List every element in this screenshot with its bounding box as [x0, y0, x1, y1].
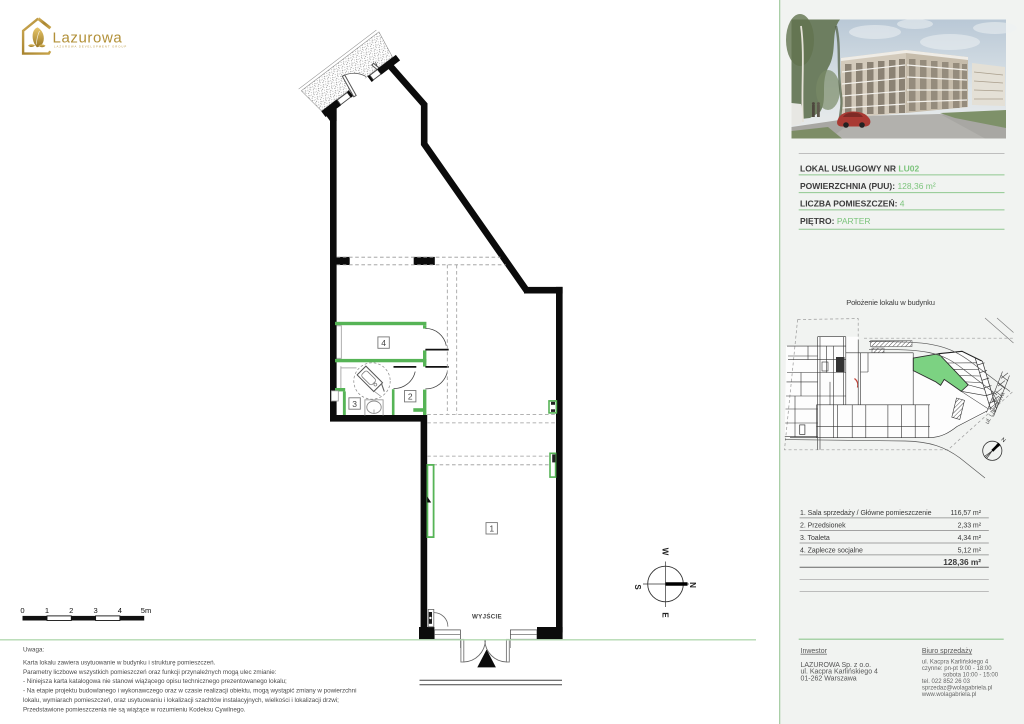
svg-text:- Na etapie projektu budowlane: - Na etapie projektu budowlanego i wykon… — [23, 688, 356, 695]
svg-text:01-262 Warszawa: 01-262 Warszawa — [801, 676, 857, 683]
svg-text:WYJŚCIE: WYJŚCIE — [472, 613, 502, 620]
svg-text:N: N — [688, 582, 697, 588]
svg-text:1: 1 — [45, 606, 49, 615]
svg-text:lokalu, wymiarach pomieszczeń,: lokalu, wymiarach pomieszczeń, oraz usyt… — [23, 697, 339, 704]
svg-text:116,57 m²: 116,57 m² — [950, 510, 981, 517]
svg-text:4: 4 — [381, 338, 386, 348]
svg-text:Biuro sprzedaży: Biuro sprzedaży — [922, 648, 973, 655]
svg-text:2. Przedsionek: 2. Przedsionek — [800, 522, 846, 529]
svg-text:5m: 5m — [141, 606, 152, 615]
svg-text:3. Toaleta: 3. Toaleta — [800, 535, 830, 542]
svg-text:sprzedaz@wolagabriela.pl: sprzedaz@wolagabriela.pl — [922, 685, 992, 691]
svg-text:Parametry liczbowe wszystkich: Parametry liczbowe wszystkich pomieszcze… — [23, 669, 277, 676]
svg-text:PIĘTRO: PARTER: PIĘTRO: PARTER — [800, 216, 871, 226]
svg-text:www.wolagabriela.pl: www.wolagabriela.pl — [921, 692, 976, 698]
svg-text:Inwestor: Inwestor — [801, 648, 828, 655]
svg-text:W: W — [661, 548, 670, 556]
svg-text:Karta lokalu zawiera usytuowan: Karta lokalu zawiera usytuowanie w budyn… — [23, 659, 216, 666]
svg-text:3: 3 — [352, 399, 357, 409]
svg-text:0: 0 — [20, 606, 24, 615]
svg-text:2,33 m²: 2,33 m² — [958, 522, 982, 529]
svg-text:Uwaga:: Uwaga: — [23, 647, 44, 654]
svg-text:sobota 10:00 - 15:00: sobota 10:00 - 15:00 — [943, 673, 999, 679]
svg-text:LICZBA POMIESZCZEŃ: 4: LICZBA POMIESZCZEŃ: 4 — [800, 199, 905, 209]
svg-text:- Niniejsza karta katalogowa n: - Niniejsza karta katalogowa nie stanowi… — [23, 678, 287, 685]
svg-text:E: E — [661, 612, 670, 618]
svg-text:4. Zaplecze socjalne: 4. Zaplecze socjalne — [800, 547, 863, 554]
svg-text:czynne: pn-pt 9:00 - 18:: czynne: pn-pt 9:00 - 18:00 — [922, 666, 992, 672]
svg-text:POWIERZCHNIA (PUU): 128,36 m²: POWIERZCHNIA (PUU): 128,36 m² — [800, 181, 936, 191]
svg-text:LAZUROWA DEVELOPMENT GROUP: LAZUROWA DEVELOPMENT GROUP — [54, 45, 127, 49]
svg-text:4,34 m²: 4,34 m² — [958, 535, 982, 542]
svg-text:ul. Kacpra Karlińskiego 4: ul. Kacpra Karlińskiego 4 — [922, 660, 989, 666]
svg-text:2: 2 — [408, 392, 413, 402]
svg-text:3: 3 — [93, 606, 97, 615]
svg-text:2: 2 — [69, 606, 73, 615]
svg-text:128,36 m²: 128,36 m² — [943, 557, 981, 567]
svg-text:S: S — [633, 584, 642, 590]
svg-text:4: 4 — [118, 606, 122, 615]
svg-text:1. Sala sprzedaży / Główne pom: 1. Sala sprzedaży / Główne pomieszczenie — [800, 510, 932, 517]
svg-text:LOKAL USŁUGOWY NR LU02: LOKAL USŁUGOWY NR LU02 — [800, 163, 919, 173]
svg-text:tel. 022 852 26 03: tel. 022 852 26 03 — [922, 679, 971, 685]
svg-text:5,12 m²: 5,12 m² — [958, 547, 982, 554]
svg-text:1: 1 — [489, 524, 494, 534]
svg-text:Położenie lokalu w budynku: Położenie lokalu w budynku — [846, 298, 935, 307]
svg-text:Przedstawione pomieszczenia ni: Przedstawione pomieszczenia nie są wiążą… — [23, 706, 246, 713]
